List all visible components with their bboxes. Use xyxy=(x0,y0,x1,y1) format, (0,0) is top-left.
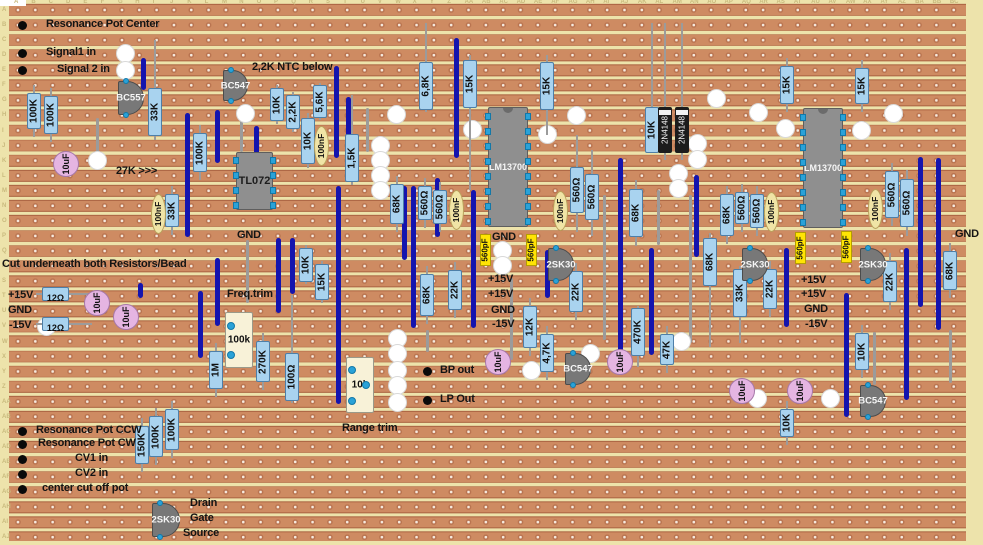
solder-pad[interactable] xyxy=(18,21,27,30)
track-cut[interactable] xyxy=(371,181,390,200)
ceramic-capacitor[interactable]: 560pF xyxy=(480,234,491,266)
ic-pin xyxy=(525,113,531,120)
solder-pad[interactable] xyxy=(18,470,27,479)
transistor-label: 2SK30 xyxy=(858,259,887,270)
solder-pad[interactable] xyxy=(18,66,27,75)
track-cut[interactable] xyxy=(388,393,407,412)
bare-wire[interactable] xyxy=(873,332,876,385)
jumper-wire[interactable] xyxy=(471,190,476,328)
board-label[interactable]: Resonance Pot CCW xyxy=(36,424,141,437)
ic-label: LM13700 xyxy=(489,162,527,172)
board-label[interactable]: Source xyxy=(183,527,219,540)
board-label[interactable]: -15V xyxy=(9,319,31,332)
ic-pin xyxy=(270,202,276,209)
board-label[interactable]: -15V xyxy=(492,318,514,331)
jumper-wire[interactable] xyxy=(336,186,341,404)
resistor[interactable]: 15K xyxy=(780,58,794,112)
resistor-value: 10K xyxy=(782,414,793,432)
track-cut[interactable] xyxy=(388,376,407,395)
board-label[interactable]: GND xyxy=(237,229,261,242)
col-label: N xyxy=(239,0,243,5)
row-label: Y xyxy=(2,369,6,375)
resistor-value: 15K xyxy=(317,273,328,291)
row-label: I xyxy=(2,128,4,134)
row-label: B xyxy=(2,22,6,28)
resistor-value: 560Ω xyxy=(435,195,446,220)
col-label: C xyxy=(49,0,53,5)
board-label[interactable]: 27K >>> xyxy=(116,165,157,178)
board-label[interactable]: GND xyxy=(491,304,515,317)
ic-pin xyxy=(800,114,806,121)
trimpot-value: 100k xyxy=(228,335,250,346)
capacitor-value: 560pF xyxy=(527,238,536,261)
track-cut[interactable] xyxy=(884,104,903,123)
row-label: AJ xyxy=(2,534,10,540)
resistor[interactable]: 4,7K xyxy=(540,326,554,380)
col-label: L xyxy=(205,0,209,5)
col-label: U xyxy=(361,0,365,5)
disc-capacitor[interactable]: 10uF xyxy=(84,290,110,316)
ceramic-capacitor[interactable]: 560pF xyxy=(841,231,852,263)
jumper-wire[interactable] xyxy=(215,258,220,326)
resistor[interactable]: 560Ω xyxy=(885,163,899,226)
transistor-lead xyxy=(865,245,871,251)
resistor-value: 33K xyxy=(735,284,746,302)
col-label: X xyxy=(413,0,417,5)
ic-label: LM13700 xyxy=(804,163,842,173)
resistor-value: 270K xyxy=(258,350,269,374)
resistor-value: 12K xyxy=(525,318,536,336)
col-label: AH xyxy=(586,0,595,5)
jumper-wire[interactable] xyxy=(649,248,654,355)
jumper-wire[interactable] xyxy=(334,66,339,158)
resistor[interactable]: 560Ω xyxy=(418,178,432,228)
capacitor-value: 560pF xyxy=(796,236,805,259)
jumper-wire[interactable] xyxy=(198,291,203,358)
resistor-value: 560Ω xyxy=(572,178,583,203)
solder-pad[interactable] xyxy=(18,427,27,436)
diode-value: 2N4148 xyxy=(678,116,687,144)
ic-pin xyxy=(485,143,491,150)
diode[interactable]: 2N4148 xyxy=(675,23,689,160)
disc-capacitor[interactable]: 10uF xyxy=(113,304,139,330)
board-edge-bottom xyxy=(0,541,983,545)
jumper-wire[interactable] xyxy=(276,238,281,313)
transistor-label: 2SK30 xyxy=(546,259,575,270)
track-cut[interactable] xyxy=(116,44,135,63)
track-cut[interactable] xyxy=(707,89,726,108)
resistor[interactable]: 270K xyxy=(256,333,270,390)
row-label: D xyxy=(2,52,6,58)
transistor-label: 2SK30 xyxy=(151,515,180,526)
ic-pin xyxy=(800,189,806,196)
transistor-label: BC547 xyxy=(858,396,888,407)
col-label: AJ xyxy=(621,0,629,5)
row-label: O xyxy=(2,218,7,224)
resistor[interactable]: 68K xyxy=(703,233,717,347)
resistor[interactable]: 10K xyxy=(270,85,284,124)
track-cut[interactable] xyxy=(236,104,255,123)
row-label: H xyxy=(2,112,6,118)
resistor-value: 10K xyxy=(647,121,658,139)
board-label[interactable]: +15V xyxy=(488,288,513,301)
resistor[interactable]: 33K xyxy=(165,186,179,235)
capacitor-value: 10uF xyxy=(795,380,805,401)
resistor-value: 10K xyxy=(857,342,868,360)
resistor-value: 1M xyxy=(211,363,222,377)
track-cut[interactable] xyxy=(116,61,135,80)
resistor[interactable]: 100K xyxy=(149,408,163,465)
jumper-wire[interactable] xyxy=(290,238,295,294)
board-label[interactable]: Cut underneath both Resistors/Bead xyxy=(2,258,187,271)
ic-chip[interactable]: LM13700 xyxy=(488,107,528,227)
resistor[interactable]: 560Ω xyxy=(900,170,914,236)
disc-capacitor[interactable]: 10uF xyxy=(787,378,813,404)
jumper-wire[interactable] xyxy=(411,186,416,328)
solder-pad[interactable] xyxy=(423,396,432,405)
col-label: AK xyxy=(638,0,647,5)
board-edge-right xyxy=(966,0,983,545)
ic-pin xyxy=(270,157,276,164)
board-label[interactable]: +15V xyxy=(488,273,513,286)
film-capacitor[interactable]: 100nF xyxy=(868,189,883,229)
capacitor-value: 100nF xyxy=(451,198,461,223)
ic-pin xyxy=(270,187,276,194)
transistor-label: BC547 xyxy=(563,364,593,375)
row-label: A xyxy=(2,7,6,13)
jumper-wire[interactable] xyxy=(138,283,143,298)
track-cut[interactable] xyxy=(852,121,871,140)
transistor[interactable]: BC547 xyxy=(565,353,591,385)
solder-pad[interactable] xyxy=(423,367,432,376)
ic-pin xyxy=(485,158,491,165)
transistor-lead xyxy=(747,245,753,251)
col-label: AN xyxy=(690,0,699,5)
col-label: A xyxy=(14,0,18,5)
resistor[interactable]: 560Ω xyxy=(433,182,447,232)
resistor[interactable]: 100K xyxy=(193,125,207,180)
disc-capacitor[interactable]: 10uF xyxy=(485,349,511,375)
disc-capacitor[interactable]: 10uF xyxy=(607,349,633,375)
solder-pad[interactable] xyxy=(18,455,27,464)
col-label: AW xyxy=(846,0,856,5)
resistor[interactable]: 10K xyxy=(780,401,794,445)
resistor[interactable]: 68K xyxy=(629,180,643,246)
disc-capacitor[interactable]: 10uF xyxy=(53,151,79,177)
ic-pin xyxy=(800,159,806,166)
col-label: AC xyxy=(499,0,508,5)
film-capacitor[interactable]: 100nF xyxy=(314,126,329,166)
resistor[interactable]: 12Ω xyxy=(36,317,92,331)
film-capacitor[interactable]: 100nF xyxy=(764,192,779,232)
board-label[interactable]: BP out xyxy=(440,364,474,377)
col-label: AE xyxy=(534,0,542,5)
row-label: S xyxy=(2,278,6,284)
resistor[interactable]: 1,5K xyxy=(345,95,359,185)
col-label: S xyxy=(326,0,330,5)
capacitor-value: 100nF xyxy=(153,202,163,227)
bare-wire[interactable] xyxy=(603,195,606,340)
ic-pin xyxy=(485,128,491,135)
ic-pin xyxy=(233,157,239,164)
col-label: AL xyxy=(655,0,663,5)
board-label[interactable]: Drain xyxy=(190,497,217,510)
col-label: P xyxy=(274,0,278,5)
jumper-wire[interactable] xyxy=(454,38,459,158)
board-label[interactable]: GND xyxy=(804,303,828,316)
resistor-value: 12Ω xyxy=(47,323,64,333)
capacitor-value: 100nF xyxy=(766,200,776,225)
board-label[interactable]: GND xyxy=(8,304,32,317)
resistor-value: 560Ω xyxy=(752,199,763,224)
resistor[interactable]: 10K xyxy=(855,325,869,378)
board-label[interactable]: Range trim xyxy=(342,422,397,435)
col-label: F xyxy=(101,0,105,5)
board-label[interactable]: center cut off pot xyxy=(42,482,128,495)
ic-pin xyxy=(525,203,531,210)
resistor-value: 68K xyxy=(422,286,433,304)
row-label: W xyxy=(2,339,8,345)
resistor[interactable]: 100K xyxy=(44,88,58,142)
ic-pin xyxy=(485,188,491,195)
row-label: L xyxy=(2,173,6,179)
board-label[interactable]: Resonance Pot CW xyxy=(38,437,136,450)
track-cut[interactable] xyxy=(669,179,688,198)
board-label[interactable]: -15V xyxy=(805,318,827,331)
row-label: AA xyxy=(2,399,11,405)
transistor-lead xyxy=(157,534,163,540)
resistor[interactable]: 1M xyxy=(209,343,223,397)
board-label[interactable]: CV2 in xyxy=(75,467,108,480)
bare-wire[interactable] xyxy=(366,108,369,152)
jumper-wire[interactable] xyxy=(844,293,849,417)
col-label: AB xyxy=(482,0,491,5)
resistor[interactable]: 10K xyxy=(299,245,313,284)
resistor[interactable]: 10K xyxy=(645,23,659,153)
resistor[interactable]: 560Ω xyxy=(735,184,749,232)
resistor[interactable]: 15K xyxy=(463,55,477,190)
ic-pin xyxy=(800,129,806,136)
board-label[interactable]: +15V xyxy=(801,274,826,287)
track-cut[interactable] xyxy=(522,361,541,380)
resistor[interactable]: 10K xyxy=(301,113,315,168)
transistor-lead xyxy=(553,245,559,251)
row-label: T xyxy=(2,293,6,299)
board-label[interactable]: Resonance Pot Center xyxy=(46,18,159,31)
resistor[interactable]: 470K xyxy=(631,306,645,367)
row-label: Z xyxy=(2,384,6,390)
track-cut[interactable] xyxy=(388,344,407,363)
row-label: K xyxy=(2,158,6,164)
col-label: AR xyxy=(759,0,768,5)
col-label: O xyxy=(257,0,262,5)
jumper-wire[interactable] xyxy=(618,158,623,363)
solder-pad[interactable] xyxy=(18,440,27,449)
transistor-lead xyxy=(123,78,129,84)
resistor[interactable]: 560Ω xyxy=(750,186,764,236)
col-label: G xyxy=(118,0,123,5)
transistor-lead xyxy=(123,112,129,118)
solder-pad[interactable] xyxy=(18,49,27,58)
resistor-value: 10K xyxy=(301,255,312,273)
board-label[interactable]: 2,2K NTC below xyxy=(252,61,332,74)
trimpot-pin xyxy=(227,322,235,330)
trimpot[interactable]: 100k xyxy=(225,312,253,368)
bare-wire[interactable] xyxy=(96,118,99,155)
jumper-wire[interactable] xyxy=(215,110,220,163)
resistor[interactable]: 68K xyxy=(390,176,404,232)
board-label[interactable]: Gate xyxy=(190,512,214,525)
page-corner xyxy=(0,0,26,6)
disc-capacitor[interactable]: 10uF xyxy=(729,378,755,404)
resistor[interactable]: 560Ω xyxy=(570,135,584,232)
capacitor-value: 100nF xyxy=(870,197,880,222)
board-label[interactable]: LP Out xyxy=(440,393,475,406)
film-capacitor[interactable]: 100nF xyxy=(553,191,568,231)
ic-pin xyxy=(485,203,491,210)
resistor-value: 15K xyxy=(465,75,476,93)
row-label: P xyxy=(2,233,6,239)
resistor[interactable]: 100K xyxy=(165,401,179,458)
track-cut[interactable] xyxy=(88,151,107,170)
row-label: C xyxy=(2,37,6,43)
ic-pin xyxy=(525,128,531,135)
resistor[interactable]: 100K xyxy=(27,85,41,137)
track-cut[interactable] xyxy=(672,332,691,351)
jumper-wire[interactable] xyxy=(784,248,789,327)
solder-pad[interactable] xyxy=(18,485,27,494)
row-label: J xyxy=(2,143,5,149)
transistor[interactable]: BC547 xyxy=(223,70,248,101)
board-label[interactable]: GND xyxy=(955,228,979,241)
capacitor-value: 10uF xyxy=(61,153,71,174)
jumper-wire[interactable] xyxy=(185,113,190,237)
track-cut[interactable] xyxy=(821,389,840,408)
col-label: AD xyxy=(517,0,526,5)
jumper-wire[interactable] xyxy=(918,157,923,307)
board-label[interactable]: GND xyxy=(492,231,516,244)
resistor[interactable]: 33K xyxy=(148,40,162,140)
resistor-value: 33K xyxy=(167,201,178,219)
row-label: M xyxy=(2,188,7,194)
resistor[interactable]: 47K xyxy=(660,326,674,373)
bare-wire[interactable] xyxy=(426,330,429,352)
film-capacitor[interactable]: 100nF xyxy=(449,190,464,230)
col-label: AY xyxy=(881,0,889,5)
board-label[interactable]: +15V xyxy=(8,289,33,302)
trimpot-pin xyxy=(348,366,356,374)
track-cut[interactable] xyxy=(567,106,586,125)
ic-pin xyxy=(800,219,806,226)
resistor[interactable]: 15K xyxy=(540,55,554,135)
row-label: X xyxy=(2,354,6,360)
board-label[interactable]: +15V xyxy=(801,288,826,301)
col-label: AP xyxy=(725,0,733,5)
col-label: AA xyxy=(465,0,474,5)
resistor[interactable]: 22K xyxy=(448,262,462,318)
resistor[interactable]: 560Ω xyxy=(585,150,599,236)
board-label[interactable]: Signal 2 in xyxy=(57,63,110,76)
col-label: B xyxy=(31,0,35,5)
resistor[interactable]: 68K xyxy=(943,243,957,298)
diode-value: 2N4148 xyxy=(661,116,670,144)
resistor[interactable]: 12K xyxy=(523,298,537,356)
track-cut[interactable] xyxy=(749,103,768,122)
transistor-label: 2SK30 xyxy=(740,259,769,270)
bare-wire[interactable] xyxy=(949,330,952,383)
jumper-wire[interactable] xyxy=(694,175,699,257)
track-cut[interactable] xyxy=(493,256,512,275)
col-label: K xyxy=(187,0,191,5)
resistor[interactable]: 6,8K xyxy=(419,23,433,112)
resistor-value: 560Ω xyxy=(420,191,431,216)
capacitor-value: 10uF xyxy=(92,292,102,313)
col-label: BB xyxy=(932,0,941,5)
col-label: AV xyxy=(829,0,837,5)
jumper-wire[interactable] xyxy=(904,248,909,400)
resistor[interactable]: 68K xyxy=(720,186,734,244)
transistor[interactable]: BC547 xyxy=(860,385,886,417)
resistor-value: 68K xyxy=(392,195,403,213)
transistor[interactable]: 2SK30 xyxy=(152,503,180,537)
bare-wire[interactable] xyxy=(689,195,692,343)
resistor-value: 470K xyxy=(633,320,644,344)
resistor-value: 33K xyxy=(150,103,161,121)
resistor-value: 22K xyxy=(571,282,582,300)
ceramic-capacitor[interactable]: 560pF xyxy=(526,234,537,266)
transistor-label: BC547 xyxy=(221,80,251,91)
resistor-value: 100K xyxy=(195,141,206,165)
ic-pin xyxy=(840,204,846,211)
board-label[interactable]: Freq.trim xyxy=(227,288,273,301)
jumper-wire[interactable] xyxy=(141,58,146,90)
board-label[interactable]: Signal1 in xyxy=(46,46,96,59)
row-label: AG xyxy=(2,489,11,495)
resistor[interactable]: 15K xyxy=(315,261,329,303)
row-label: F xyxy=(2,82,6,88)
transistor-lead xyxy=(570,382,576,388)
resistor-value: 15K xyxy=(857,77,868,95)
col-label: AQ xyxy=(742,0,751,5)
track-cut[interactable] xyxy=(776,119,795,138)
film-capacitor[interactable]: 100nF xyxy=(151,194,166,234)
row-label: AF xyxy=(2,474,10,480)
transistor-lead xyxy=(865,414,871,420)
ceramic-capacitor[interactable]: 560pF xyxy=(795,232,806,264)
resistor-value: 100Ω xyxy=(287,365,298,390)
resistor[interactable]: 15K xyxy=(855,60,869,112)
ic-pin xyxy=(840,114,846,121)
row-label: U xyxy=(2,308,6,314)
col-label: Y xyxy=(430,0,434,5)
resistor[interactable]: 5,6K xyxy=(313,83,327,120)
col-label: J xyxy=(170,0,173,5)
resistor[interactable]: 68K xyxy=(420,266,434,324)
resistor[interactable]: 100Ω xyxy=(285,295,299,403)
track-cut[interactable] xyxy=(387,105,406,124)
bare-wire[interactable] xyxy=(657,190,660,245)
resistor-value: 15K xyxy=(782,76,793,94)
diode[interactable]: 2N4148 xyxy=(658,23,672,160)
ic-chip[interactable]: LM13700 xyxy=(803,108,843,228)
capacitor-value: 10uF xyxy=(493,351,503,372)
track-cut[interactable] xyxy=(688,150,707,169)
ic-chip[interactable]: TL072 xyxy=(236,152,273,210)
ic-pin xyxy=(840,219,846,226)
jumper-wire[interactable] xyxy=(936,158,941,330)
resistor[interactable]: 2,2K xyxy=(286,92,300,132)
board-label[interactable]: CV1 in xyxy=(75,452,108,465)
